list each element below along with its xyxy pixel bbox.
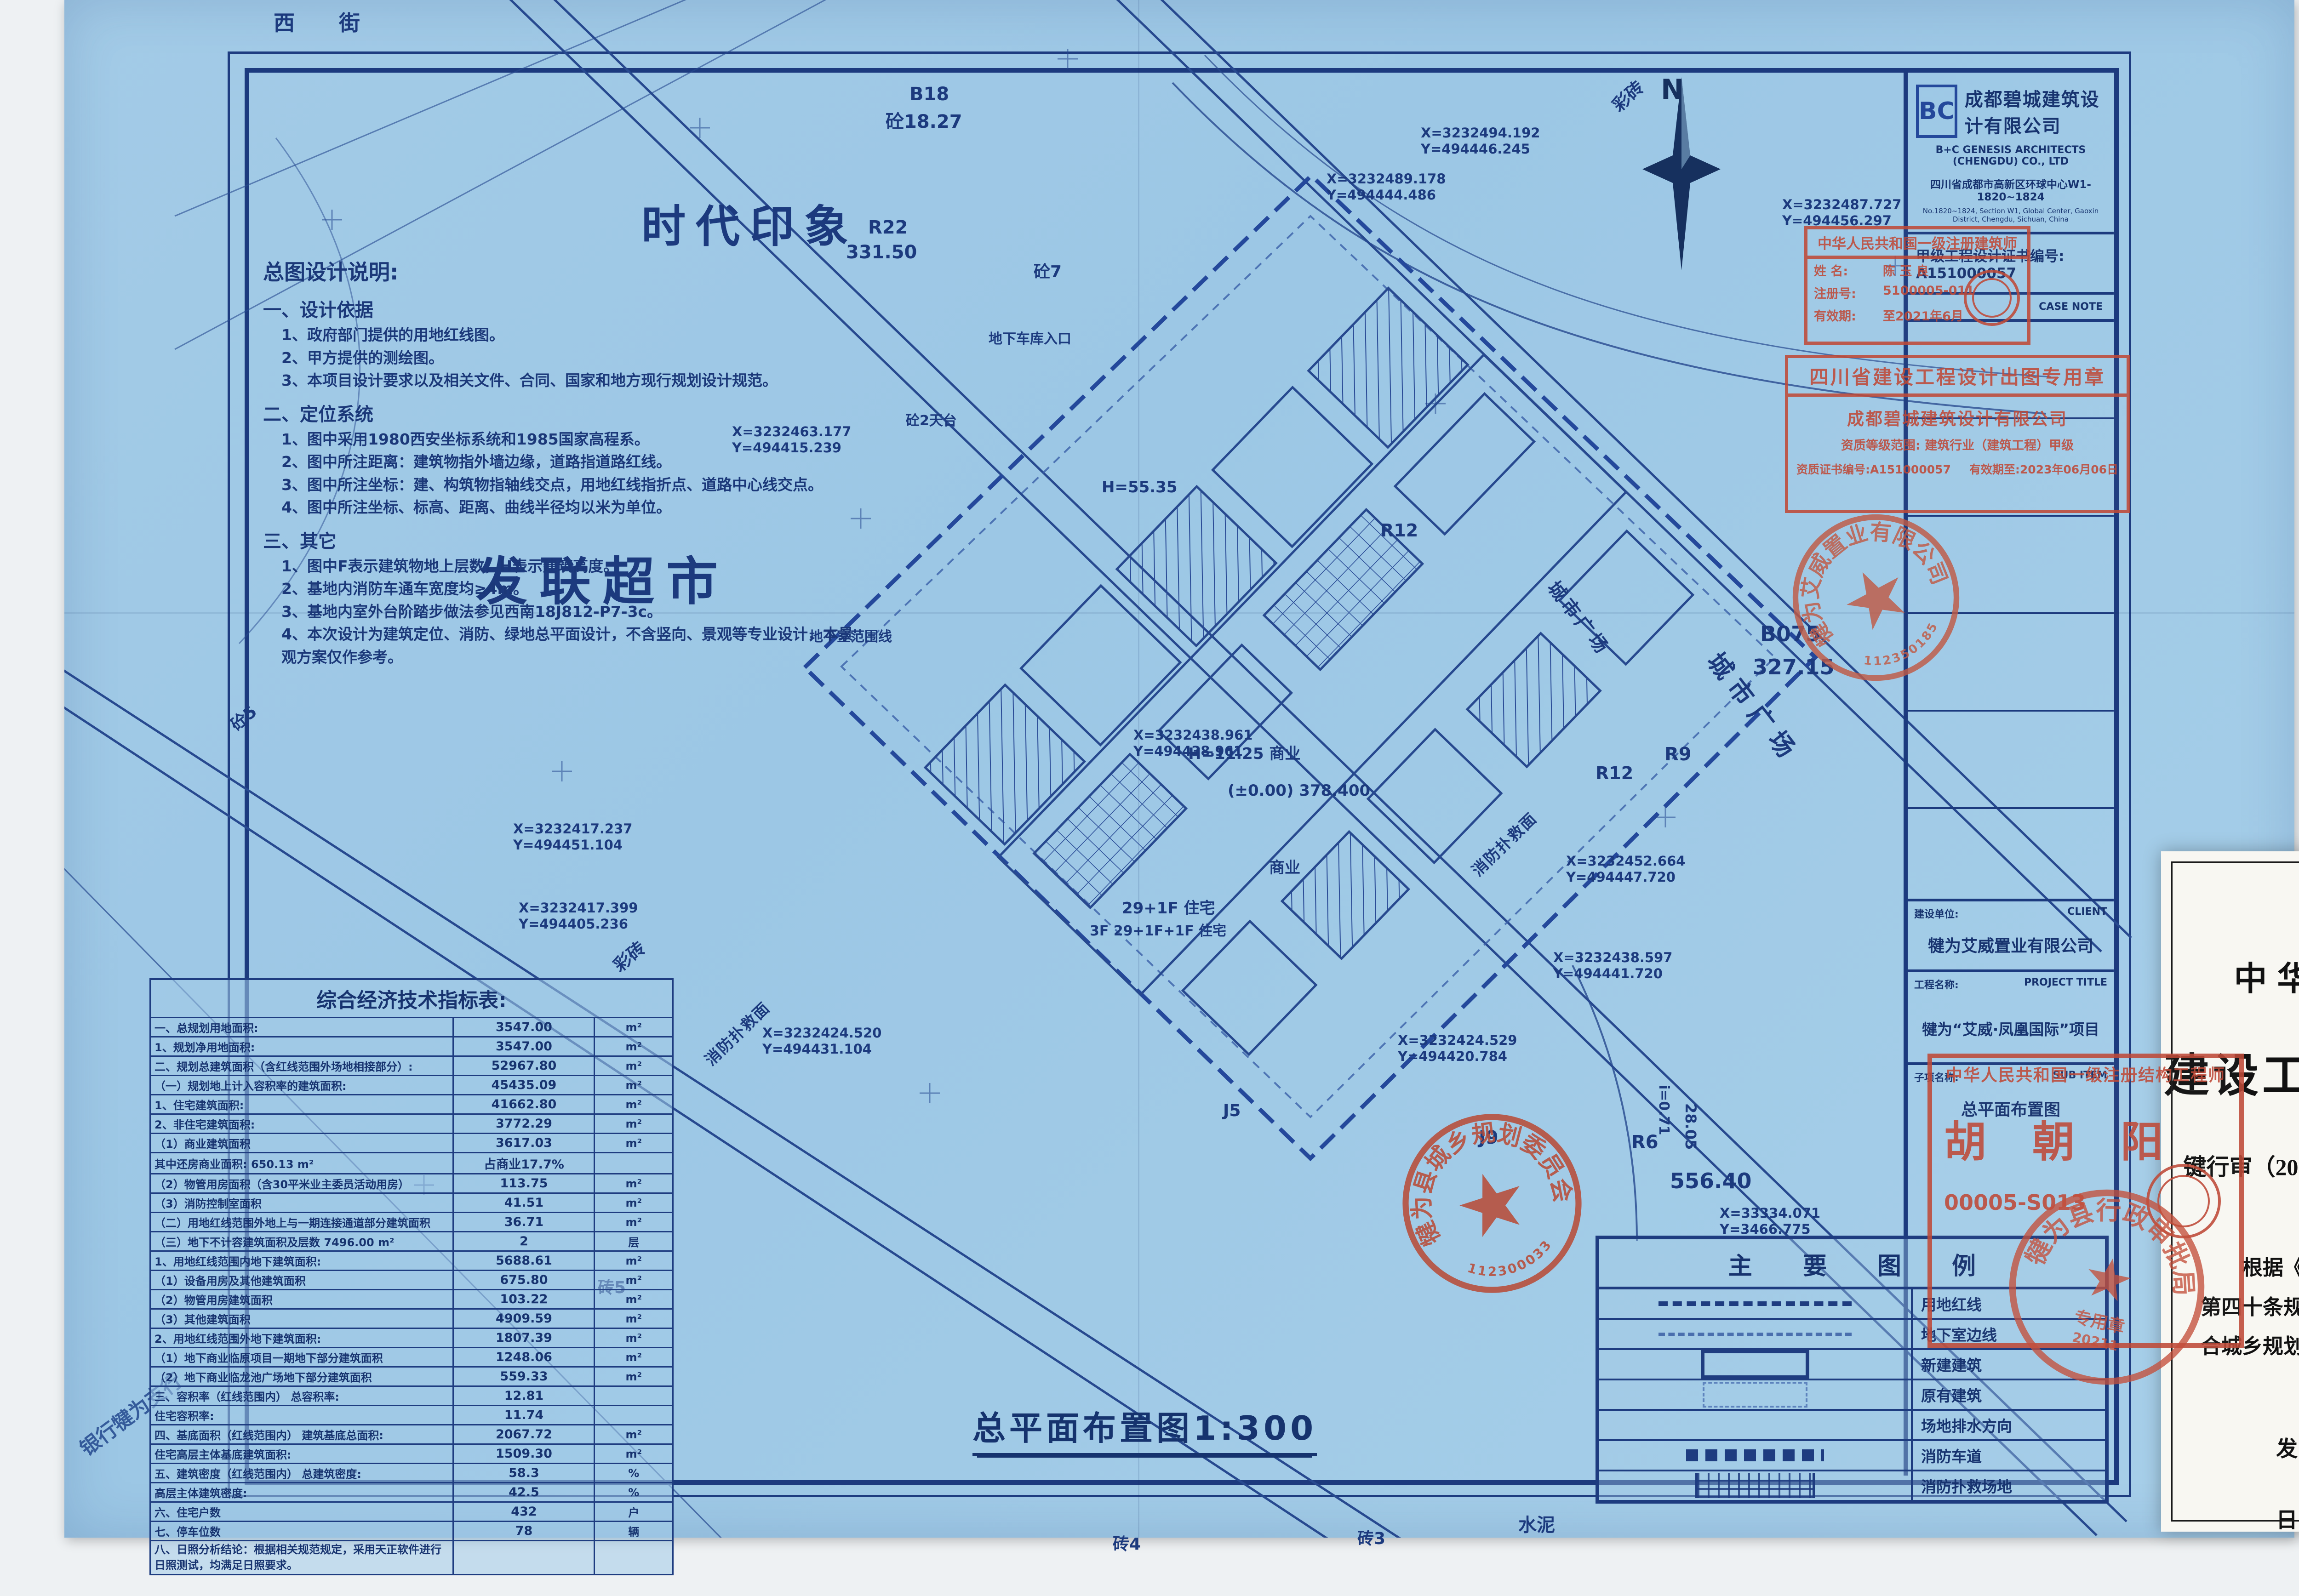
release-stamp-title: 四川省建设工程设计出图专用章 [1788,358,2127,397]
indicator-row: 七、停车位数 78 辆 [150,1522,673,1541]
design-note-line: 总图设计说明: [263,256,856,286]
structural-stamp-title: 中华人民共和国一级注册结构工程师 [1932,1058,2239,1089]
indicator-unit [595,1541,673,1575]
indicator-label: 五、建筑密度（红线范围内） 总建筑密度: [150,1464,453,1483]
indicator-label: （2）物管用房面积（含30平米业主委员活动用房） [150,1174,453,1193]
indicator-value: 1509.30 [453,1444,595,1464]
map-label: H=55.35 [1102,478,1178,496]
indicator-value: 5688.61 [453,1251,595,1271]
economic-indicator-table: 综合经济技术指标表: 一、总规划用地面积: 3547.00 m² 1、规划净用地… [149,978,674,1575]
indicator-row: 1、用地红线范围内地下建筑面积: 5688.61 m² [150,1251,673,1271]
design-note-line: 1、图中F表示建筑物地上层数，H表示建筑高度。 [281,555,856,578]
indicator-row: （一）规划地上计入容积率的建筑面积: 45435.09 m² [150,1076,673,1095]
map-label: R9 [1664,744,1692,765]
map-label: R6 [1631,1132,1658,1153]
legend-row: 场地排水方向 [1599,1411,2105,1441]
indicator-unit: 辆 [595,1522,673,1541]
project-label-en: PROJECT TITLE [2024,977,2107,992]
indicator-unit: m² [595,1348,673,1367]
indicator-label: （1）设备用房及其他建筑面积 [150,1271,453,1290]
map-label: 地下车库入口 [989,327,1071,348]
indicator-row: 八、日照分析结论：根据相关规范规定，采用天正软件进行日照测试，均满足日照要求。 [150,1541,673,1575]
architect-valid-date: 至2021年6月 [1883,306,1963,324]
indicator-value: 3617.03 [453,1134,595,1153]
coordinate-label: X=3232424.520Y=494431.104 [762,1025,881,1057]
indicator-value: 11.74 [453,1406,595,1425]
coordinate-label: X=3232424.529Y=494420.784 [1398,1032,1517,1065]
map-label: 砼2天台 [906,409,957,429]
map-label: 砖4 [1113,1531,1141,1555]
indicator-label: 2、用地红线范围外地下建筑面积: [150,1328,453,1348]
legend-symbol-icon [1701,1350,1809,1379]
client-cell: 建设单位: CLIENT 犍为艾威置业有限公司 [1908,901,2114,972]
indicator-label: （二）用地红线范围外地上与一期连接通道部分建筑面积 [150,1213,453,1232]
design-firm-name-en: B+C GENESIS ARCHITECTS (CHENGDU) CO., LT… [1916,144,2105,167]
release-stamp-scope: 资质等级范围: 建筑行业（建筑工程）甲级 [1788,435,2127,453]
legend-label: 新建建筑 [1913,1350,2105,1379]
indicator-unit: m² [595,1193,673,1213]
indicator-label: （一）规划地上计入容积率的建筑面积: [150,1076,453,1095]
indicator-value: 3547.00 [453,1037,595,1056]
indicator-label: 2、非住宅建筑面积: [150,1114,453,1134]
indicator-value: 42.5 [453,1483,595,1502]
legend-label: 原有建筑 [1913,1380,2105,1409]
indicator-value: 41.51 [453,1193,595,1213]
map-label: 29+1F 住宅 [1122,895,1215,918]
release-stamp-valid: 有效期至:2023年06月06日 [1969,461,2118,477]
design-note-line: 4、图中所注坐标、标高、距离、曲线半径均以米为单位。 [281,496,856,519]
architect-stamp-title: 中华人民共和国一级注册建筑师 [1807,229,2027,259]
legend-row: 新建建筑 [1599,1350,2105,1380]
indicator-row: （2）地下商业临龙池广场地下部分建筑面积 559.33 m² [150,1367,673,1386]
registered-architect-stamp: 中华人民共和国一级注册建筑师 姓 名: 陈 玉 良 注册号: 5100005-0… [1804,226,2030,345]
indicator-unit [595,1386,673,1406]
indicator-value: 52967.80 [453,1056,595,1076]
indicator-label: 二、规划总建筑面积（含红线范围外场地相接部分）: [150,1056,453,1076]
coordinate-label: X=3232487.727Y=494456.297 [1782,197,1901,229]
design-note-line: 2、甲方提供的测绘图。 [281,347,856,370]
design-note-line: 2、图中所注距离：建筑物指外墙边缘，道路指道路红线。 [281,450,856,473]
indicator-label: （1）地下商业临原项目一期地下部分建筑面积 [150,1348,453,1367]
map-label: R12 [1380,520,1418,541]
indicator-row: 1、规划净用地面积: 3547.00 m² [150,1037,673,1056]
indicator-label: 三、容积率（红线范围内） 总容积率: [150,1386,453,1406]
indicator-label: 住宅容积率: [150,1406,453,1425]
coordinate-label: X=3232452.664Y=494447.720 [1566,853,1685,885]
indicator-label: 1、用地红线范围内地下建筑面积: [150,1251,453,1271]
indicator-row: 其中还房商业面积: 650.13 m² 占商业17.7% [150,1153,673,1174]
indicator-row: （二）用地红线范围外地上与一期连接通道部分建筑面积 36.71 m² [150,1213,673,1232]
design-note-line: 三、其它 [263,526,856,553]
indicator-label: （三）地下不计容建筑面积及层数 7496.00 m² [150,1232,453,1251]
architect-reg-number: 5100005-011 [1883,284,1974,302]
map-label: R12 [1596,763,1633,783]
indicator-unit: m² [595,1095,673,1114]
design-note-line: 一、设计依据 [263,295,856,322]
map-label: 水泥 [1518,1510,1555,1537]
structural-stamp-emblem-icon [2146,1164,2221,1238]
indicator-row: （3）消防控制室面积 41.51 m² [150,1193,673,1213]
indicator-label: （3）其他建筑面积 [150,1309,453,1328]
design-note-line: 3、基地内室外台阶踏步做法参见西南18J812-P7-3c。 [281,600,856,623]
design-note-line: 1、图中采用1980西安坐标系统和1985国家高程系。 [281,428,856,451]
indicator-unit: m² [595,1290,673,1309]
indicator-unit: 户 [595,1502,673,1522]
coordinate-label: X=3232494.192Y=494446.245 [1421,125,1540,157]
indicator-row: （2）物管用房建筑面积 103.22 m² [150,1290,673,1309]
north-letter: N [1661,74,1684,106]
indicator-unit: m² [595,1114,673,1134]
map-label: 3F 29+1F+1F 住宅 [1090,919,1226,940]
coordinate-label: X=33334.071Y=3466.775 [1720,1205,1820,1237]
indicator-unit: m² [595,1037,673,1056]
indicator-value: 41662.80 [453,1095,595,1114]
legend-row: 消防车道 [1599,1441,2105,1471]
coordinate-label: X=3232438.961Y=494438.961 [1133,727,1252,759]
design-note-line: 3、本项目设计要求以及相关文件、合同、国家和地方现行规划设计规范。 [281,369,856,392]
indicator-label: （2）物管用房建筑面积 [150,1290,453,1309]
indicator-label: 四、基底面积（红线范围内） 建筑基底总面积: [150,1425,453,1444]
map-label: B18 [909,84,949,105]
indicator-unit: % [595,1483,673,1502]
indicator-unit [595,1153,673,1174]
map-label: 331.50 [846,242,917,263]
indicator-row: 住宅高层主体基底建筑面积: 1509.30 m² [150,1444,673,1464]
indicator-row: 四、基底面积（红线范围内） 建筑基底总面积: 2067.72 m² [150,1425,673,1444]
legend-row: 原有建筑 [1599,1380,2105,1411]
indicator-row: 住宅容积率: 11.74 [150,1406,673,1425]
design-firm-logo-icon: BC [1916,85,1957,138]
indicator-row: （3）其他建筑面积 4909.59 m² [150,1309,673,1328]
coordinate-label: X=3232489.178Y=494444.486 [1327,171,1446,203]
indicator-value: 3547.00 [453,1018,595,1037]
indicator-row: （1）设备用房及其他建筑面积 675.80 m² [150,1271,673,1290]
indicator-label: （3）消防控制室面积 [150,1193,453,1213]
indicator-label: 1、住宅建筑面积: [150,1095,453,1114]
legend-symbol-icon [1686,1449,1824,1461]
indicator-value: 45435.09 [453,1076,595,1095]
release-stamp-company: 成都碧城建筑设计有限公司 [1788,405,2127,430]
map-label: 556.40 [1670,1168,1752,1193]
site-plan-sheet: 西 街 银行犍为支行 N 总图设计说明: 一、设计依据 1、政府部门提供的用地红… [64,0,2294,1538]
indicator-label: 高层主体建筑密度: [150,1483,453,1502]
indicator-row: 2、非住宅建筑面积: 3772.29 m² [150,1114,673,1134]
indicator-value: 103.22 [453,1290,595,1309]
design-notes: 总图设计说明: 一、设计依据 1、政府部门提供的用地红线图。 2、甲方提供的测绘… [263,256,856,668]
map-label: 327.15 [1753,655,1835,679]
release-stamp-cert: 资质证书编号:A151000057 [1796,461,1951,477]
indicator-unit: m² [595,1328,673,1348]
indicator-row: 二、规划总建筑面积（含红线范围外场地相接部分）: 52967.80 m² [150,1056,673,1076]
indicator-label: 住宅高层主体基底建筑面积: [150,1444,453,1464]
indicator-label: 一、总规划用地面积: [150,1018,453,1037]
indicator-table-title: 综合经济技术指标表: [149,978,674,1017]
indicator-value [453,1541,595,1575]
indicator-row: 一、总规划用地面积: 3547.00 m² [150,1018,673,1037]
indicator-row: 三、容积率（红线范围内） 总容积率: 12.81 [150,1386,673,1406]
legend-symbol-icon [1695,1473,1815,1498]
indicator-unit [595,1406,673,1425]
design-note-line: 4、本次设计为建筑定位、消防、绿地总平面设计，不含竖向、景观等专业设计，本景观方… [281,623,856,668]
map-label: 砼7 [1034,258,1062,282]
street-name-label: 西 街 [274,6,378,37]
legend-label: 消防车道 [1913,1441,2105,1470]
indicator-unit: m² [595,1309,673,1328]
indicator-value: 432 [453,1502,595,1522]
indicator-label: 六、住宅户数 [150,1502,453,1522]
client-name: 犍为艾威置业有限公司 [1914,921,2107,965]
design-note-line: 1、政府部门提供的用地红线图。 [281,324,856,347]
legend-symbol-icon [1703,1382,1807,1408]
indicator-unit: m² [595,1213,673,1232]
indicator-row: （1）商业建筑面积 3617.03 m² [150,1134,673,1153]
design-note-line: 2、基地内消防车通车宽度均≥4m。 [281,577,856,600]
indicator-value: 2 [453,1232,595,1251]
design-note-line: 3、图中所注坐标：建、构筑物指轴线交点，用地红线指折点、道路中心线交点。 [281,473,856,496]
indicator-unit: 层 [595,1232,673,1251]
indicator-label: 七、停车位数 [150,1522,453,1541]
map-label: J9 [1479,1127,1498,1148]
legend-symbol-icon [1658,1301,1852,1306]
indicator-value: 113.75 [453,1174,595,1193]
north-arrow: N [1642,77,1721,272]
map-label: (±0.00) 378.400 [1228,781,1370,800]
indicator-row: （三）地下不计容建筑面积及层数 7496.00 m² 2 层 [150,1232,673,1251]
indicator-value: 3772.29 [453,1114,595,1134]
indicator-label: 1、规划净用地面积: [150,1037,453,1056]
indicator-row: 高层主体建筑密度: 42.5 % [150,1483,673,1502]
indicator-unit: m² [595,1134,673,1153]
indicator-label: 八、日照分析结论：根据相关规范规定，采用天正软件进行日照测试，均满足日照要求。 [150,1541,453,1575]
design-firm-name-cn: 成都碧城建筑设计有限公司 [1965,85,2105,138]
indicator-unit: m² [595,1271,673,1290]
indicator-unit: % [595,1464,673,1483]
coordinate-label: X=3232417.399Y=494405.236 [519,900,638,932]
map-label: 砖3 [1357,1525,1385,1549]
indicator-row: （1）地下商业临原项目一期地下部分建筑面积 1248.06 m² [150,1348,673,1367]
legend-row: 消防扑救场地 [1599,1471,2105,1500]
indicator-unit: m² [595,1174,673,1193]
indicator-value: 78 [453,1522,595,1541]
indicator-unit: m² [595,1251,673,1271]
indicator-label: （2）地下商业临龙池广场地下部分建筑面积 [150,1367,453,1386]
indicator-label: （1）商业建筑面积 [150,1134,453,1153]
map-label: 商业 [1269,855,1300,878]
project-cell: 工程名称: PROJECT TITLE 犍为“艾威·凤凰国际”项目 [1908,972,2114,1065]
map-label: 时代印象 [641,191,858,255]
drawing-release-stamp: 四川省建设工程设计出图专用章 成都碧城建筑设计有限公司 资质等级范围: 建筑行业… [1785,355,2130,513]
indicator-value: 4909.59 [453,1309,595,1328]
indicator-value: 675.80 [453,1271,595,1290]
indicator-value: 559.33 [453,1367,595,1386]
indicator-value: 1807.39 [453,1328,595,1348]
map-label: J5 [1223,1101,1241,1120]
indicator-row: 五、建筑密度（红线范围内） 总建筑密度: 58.3 % [150,1464,673,1483]
map-label: R22 [868,217,908,238]
map-label: 砼18.27 [886,107,962,133]
project-name: 犍为“艾威·凤凰国际”项目 [1914,992,2107,1058]
indicator-row: 2、用地红线范围外地下建筑面积: 1807.39 m² [150,1328,673,1348]
client-label-en: CLIENT [2067,906,2107,921]
design-note-line: 二、定位系统 [263,399,856,426]
map-label: i=0.71 [1656,1085,1672,1135]
design-firm-address-cn: 四川省成都市高新区环球中心W1-1820~1824 [1916,176,2105,203]
coordinate-label: X=3232417.237Y=494451.104 [513,821,632,853]
map-label: B075 [1760,621,1820,646]
indicator-unit: m² [595,1076,673,1095]
client-label-cn: 建设单位: [1914,906,1959,921]
indicator-row: （2）物管用房面积（含30平米业主委员活动用房） 113.75 m² [150,1174,673,1193]
architect-stamp-emblem-icon [1964,270,2020,326]
legend-label: 消防扑救场地 [1913,1471,2105,1500]
indicator-value: 36.71 [453,1213,595,1232]
structural-engineer-stamp: 中华人民共和国一级注册结构工程师 胡 朝 阳 00005-S013 [1927,1054,2244,1348]
plan-title: 总平面布置图1:300 [972,1401,1317,1456]
indicator-row: 1、住宅建筑面积: 41662.80 m² [150,1095,673,1114]
indicator-label: 其中还房商业面积: 650.13 m² [150,1153,453,1174]
indicator-value: 2067.72 [453,1425,595,1444]
indicator-unit: m² [595,1367,673,1386]
legend-label: 场地排水方向 [1913,1411,2105,1439]
architect-name: 陈 玉 良 [1883,261,1929,279]
map-label: 28.05 [1682,1103,1699,1150]
indicator-value: 1248.06 [453,1348,595,1367]
project-label-cn: 工程名称: [1914,977,1959,992]
structural-engineer-name: 胡 朝 阳 [1944,1108,2239,1169]
indicator-unit: m² [595,1018,673,1037]
design-firm-address-en: No.1820~1824, Section W1, Global Center,… [1916,207,2105,223]
indicator-unit: m² [595,1425,673,1444]
legend-symbol-icon [1658,1333,1852,1336]
indicator-value: 12.81 [453,1386,595,1406]
indicator-value: 58.3 [453,1464,595,1483]
indicator-row: 六、住宅户数 432 户 [150,1502,673,1522]
design-firm-block: BC 成都碧城建筑设计有限公司 B+C GENESIS ARCHITECTS (… [1908,68,2114,234]
indicator-unit: m² [595,1444,673,1464]
indicator-value: 占商业17.7% [453,1153,595,1174]
indicator-unit: m² [595,1056,673,1076]
coordinate-label: X=3232438.597Y=494441.720 [1553,950,1672,982]
